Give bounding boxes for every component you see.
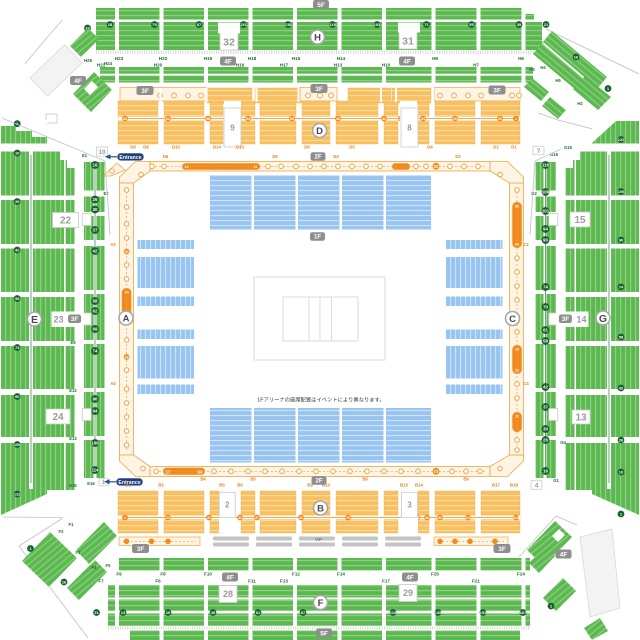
svg-text:69: 69	[93, 327, 98, 332]
svg-text:23: 23	[166, 516, 170, 520]
svg-text:D9: D9	[130, 145, 136, 150]
svg-text:4F: 4F	[560, 551, 568, 558]
svg-text:D13: D13	[236, 145, 244, 150]
svg-text:21: 21	[544, 22, 549, 27]
svg-text:14: 14	[185, 165, 189, 169]
svg-text:106: 106	[542, 190, 550, 195]
svg-text:22: 22	[60, 216, 72, 227]
svg-text:74: 74	[93, 349, 98, 354]
svg-text:B14: B14	[415, 483, 423, 488]
svg-text:F17: F17	[382, 579, 390, 584]
svg-text:46: 46	[336, 117, 340, 121]
svg-text:3F: 3F	[137, 546, 145, 553]
svg-text:50: 50	[198, 469, 203, 474]
svg-text:116: 116	[542, 163, 550, 168]
svg-text:70: 70	[346, 516, 350, 520]
svg-text:F4: F4	[92, 565, 98, 570]
svg-text:B5: B5	[219, 483, 225, 488]
svg-text:23: 23	[53, 315, 63, 325]
svg-text:VIP: VIP	[315, 537, 322, 542]
svg-text:29: 29	[403, 588, 413, 598]
svg-text:H10: H10	[382, 63, 391, 68]
svg-text:D6: D6	[163, 154, 169, 159]
svg-text:54: 54	[246, 117, 250, 121]
svg-text:5F: 5F	[320, 630, 328, 637]
svg-text:30: 30	[93, 207, 98, 212]
svg-text:39: 39	[517, 22, 522, 27]
svg-text:13: 13	[121, 610, 126, 615]
svg-text:D10: D10	[172, 145, 180, 150]
svg-text:F: F	[318, 598, 324, 609]
svg-text:17: 17	[166, 469, 171, 474]
svg-text:151: 151	[240, 22, 247, 27]
svg-text:D8: D8	[143, 145, 149, 150]
svg-text:E9: E9	[70, 340, 76, 345]
svg-text:G1: G1	[553, 478, 559, 483]
svg-text:H17: H17	[280, 63, 289, 68]
svg-text:H22: H22	[159, 56, 168, 61]
svg-text:G4: G4	[560, 440, 566, 445]
svg-text:18: 18	[108, 22, 113, 27]
svg-text:2F: 2F	[315, 479, 322, 485]
svg-text:74: 74	[15, 345, 20, 350]
svg-text:H5: H5	[555, 78, 561, 83]
svg-text:26: 26	[543, 438, 548, 443]
svg-text:E13: E13	[69, 436, 77, 441]
svg-text:H7: H7	[473, 63, 479, 68]
svg-text:42: 42	[93, 249, 98, 254]
svg-text:4F: 4F	[403, 58, 411, 65]
svg-text:30: 30	[543, 427, 548, 432]
svg-text:119: 119	[390, 610, 397, 615]
svg-text:G16: G16	[550, 152, 559, 157]
svg-text:61: 61	[256, 610, 261, 615]
svg-text:B17: B17	[492, 483, 500, 488]
svg-text:94: 94	[543, 227, 548, 232]
svg-text:A2: A2	[110, 242, 116, 247]
svg-text:F3: F3	[76, 550, 82, 555]
svg-text:58: 58	[15, 296, 20, 301]
svg-text:D1: D1	[511, 145, 517, 150]
svg-text:47: 47	[255, 516, 259, 520]
svg-text:167: 167	[520, 610, 527, 615]
svg-text:101: 101	[542, 209, 550, 214]
svg-text:62: 62	[93, 309, 98, 314]
svg-text:37: 37	[543, 405, 548, 410]
svg-text:B8: B8	[362, 477, 368, 482]
svg-text:114: 114	[91, 468, 99, 473]
svg-text:D2: D2	[455, 154, 461, 159]
svg-text:B2: B2	[158, 483, 164, 488]
svg-text:58: 58	[93, 299, 98, 304]
svg-text:F12: F12	[292, 572, 300, 577]
svg-text:34: 34	[421, 117, 425, 121]
svg-text:H13: H13	[334, 63, 343, 68]
svg-text:8: 8	[407, 123, 412, 132]
svg-text:H25: H25	[84, 58, 93, 63]
svg-text:15: 15	[574, 215, 586, 226]
svg-text:89: 89	[425, 516, 429, 520]
svg-text:28: 28	[223, 589, 233, 599]
svg-text:D5: D5	[272, 154, 278, 159]
svg-text:87: 87	[301, 610, 306, 615]
svg-text:103: 103	[374, 22, 381, 27]
svg-text:F13: F13	[280, 579, 288, 584]
svg-text:42: 42	[238, 516, 242, 520]
svg-text:1F: 1F	[314, 235, 321, 241]
svg-text:3F: 3F	[493, 87, 501, 94]
svg-text:H15: H15	[292, 56, 301, 61]
svg-text:106: 106	[618, 189, 625, 194]
svg-text:122: 122	[14, 491, 21, 496]
svg-text:D5: D5	[349, 145, 355, 150]
svg-text:14: 14	[576, 315, 586, 325]
svg-text:G15: G15	[564, 145, 573, 150]
svg-text:62: 62	[166, 117, 170, 121]
svg-text:29: 29	[166, 610, 171, 615]
svg-text:30: 30	[453, 117, 457, 121]
svg-text:A4: A4	[110, 381, 116, 386]
svg-text:9: 9	[230, 123, 235, 132]
svg-text:H19: H19	[204, 56, 213, 61]
svg-text:4F: 4F	[406, 574, 414, 581]
svg-text:135: 135	[435, 610, 442, 615]
svg-text:135: 135	[285, 22, 292, 27]
svg-text:E15: E15	[69, 483, 77, 488]
svg-text:24: 24	[52, 412, 64, 423]
svg-text:3F: 3F	[562, 316, 570, 323]
svg-text:C: C	[509, 314, 516, 325]
svg-text:122: 122	[618, 137, 625, 142]
svg-text:4: 4	[535, 482, 539, 489]
svg-text:D6: D6	[304, 145, 310, 150]
svg-text:55: 55	[469, 22, 474, 27]
svg-text:58: 58	[543, 339, 548, 344]
svg-text:94: 94	[93, 409, 98, 414]
svg-text:2: 2	[225, 501, 230, 510]
svg-text:119: 119	[513, 516, 519, 520]
svg-text:37: 37	[93, 228, 98, 233]
svg-text:45: 45	[211, 610, 216, 615]
svg-text:1Fアリーナの座席配置はイベントにより異なります。: 1Fアリーナの座席配置はイベントにより異なります。	[257, 396, 384, 404]
svg-text:13: 13	[575, 413, 587, 424]
svg-text:H3: H3	[529, 67, 535, 72]
svg-text:90: 90	[619, 237, 624, 242]
svg-text:H: H	[314, 32, 321, 43]
svg-text:42: 42	[382, 117, 386, 121]
svg-text:4F: 4F	[224, 58, 232, 65]
svg-text:F6: F6	[155, 579, 161, 584]
svg-text:58: 58	[619, 334, 624, 339]
svg-text:90: 90	[15, 394, 20, 399]
svg-text:H16: H16	[236, 63, 245, 68]
svg-text:H24: H24	[104, 61, 113, 66]
svg-text:F2: F2	[59, 529, 65, 534]
svg-text:74: 74	[543, 285, 548, 290]
svg-text:151: 151	[480, 610, 487, 615]
svg-text:42: 42	[543, 385, 548, 390]
svg-text:G: G	[599, 313, 607, 325]
svg-text:21: 21	[94, 610, 99, 615]
svg-text:B6: B6	[237, 483, 243, 488]
svg-text:F1: F1	[69, 522, 75, 527]
svg-text:F9: F9	[116, 572, 122, 577]
svg-text:C2: C2	[523, 242, 529, 247]
svg-text:74: 74	[619, 284, 624, 289]
svg-text:92: 92	[438, 516, 442, 520]
svg-text:42: 42	[15, 247, 20, 252]
svg-text:H18: H18	[248, 56, 257, 61]
svg-text:F24: F24	[517, 572, 525, 577]
svg-text:3F: 3F	[498, 546, 506, 553]
svg-text:10: 10	[15, 150, 20, 155]
svg-text:62: 62	[299, 516, 303, 520]
svg-text:H6: H6	[518, 56, 524, 61]
svg-text:B5: B5	[250, 477, 256, 482]
svg-text:16: 16	[574, 54, 579, 59]
svg-text:B: B	[317, 503, 324, 514]
svg-text:16: 16	[93, 163, 98, 168]
svg-text:H23: H23	[115, 56, 124, 61]
svg-text:H14: H14	[337, 56, 346, 61]
svg-text:71: 71	[424, 22, 429, 27]
svg-text:7: 7	[537, 148, 541, 155]
svg-text:50: 50	[434, 164, 439, 169]
svg-text:F14: F14	[337, 572, 345, 577]
svg-text:11: 11	[254, 165, 258, 169]
svg-text:D4: D4	[427, 145, 433, 150]
svg-text:16: 16	[543, 469, 548, 474]
svg-text:D4: D4	[333, 154, 339, 159]
svg-text:90: 90	[543, 238, 548, 243]
svg-text:3: 3	[407, 501, 412, 510]
svg-text:F11: F11	[248, 579, 256, 584]
svg-text:H2: H2	[577, 101, 583, 106]
svg-text:106: 106	[91, 441, 99, 446]
svg-text:3F: 3F	[141, 88, 149, 95]
svg-text:26: 26	[15, 199, 20, 204]
svg-text:10: 10	[619, 469, 624, 474]
svg-text:31: 31	[402, 35, 414, 47]
svg-text:67: 67	[197, 22, 202, 27]
svg-text:F5: F5	[106, 563, 112, 568]
svg-text:58: 58	[206, 117, 210, 121]
svg-text:D14: D14	[213, 145, 221, 150]
svg-text:F10: F10	[204, 572, 212, 577]
svg-text:E: E	[31, 314, 38, 326]
svg-text:26: 26	[93, 197, 98, 202]
svg-text:B13: B13	[400, 483, 408, 488]
svg-text:50: 50	[290, 117, 294, 121]
svg-text:B4: B4	[200, 477, 206, 482]
svg-text:F8: F8	[160, 572, 166, 577]
svg-text:1: 1	[124, 516, 126, 520]
svg-text:16: 16	[62, 579, 67, 584]
svg-text:4F: 4F	[226, 574, 234, 581]
svg-text:F20: F20	[431, 572, 439, 577]
svg-text:H4: H4	[540, 65, 546, 70]
svg-text:F21: F21	[472, 579, 480, 584]
svg-text:10: 10	[98, 149, 106, 156]
svg-text:D2: D2	[493, 145, 499, 150]
svg-text:5F: 5F	[317, 2, 325, 9]
svg-text:32: 32	[223, 36, 235, 48]
svg-text:66: 66	[123, 117, 127, 121]
svg-text:31: 31	[207, 516, 211, 520]
svg-text:E12: E12	[69, 388, 77, 393]
svg-text:3F: 3F	[71, 316, 79, 323]
svg-text:C4: C4	[523, 381, 529, 386]
svg-text:B9: B9	[463, 477, 469, 482]
svg-text:A: A	[123, 313, 130, 324]
svg-text:119: 119	[329, 22, 336, 27]
svg-text:111: 111	[465, 516, 471, 520]
svg-text:42: 42	[619, 385, 624, 390]
svg-text:4F: 4F	[74, 78, 82, 85]
svg-text:Entrance: Entrance	[119, 155, 141, 161]
svg-text:106: 106	[14, 442, 21, 447]
svg-text:G2: G2	[531, 191, 537, 196]
svg-text:26: 26	[619, 437, 624, 442]
svg-text:70: 70	[543, 305, 548, 310]
svg-text:90: 90	[93, 397, 98, 402]
svg-text:H20: H20	[154, 63, 163, 68]
svg-text:3F: 3F	[315, 86, 323, 93]
svg-text:B18: B18	[510, 483, 518, 488]
svg-text:79: 79	[152, 22, 157, 27]
svg-text:E2: E2	[103, 191, 109, 196]
svg-text:1: 1	[515, 117, 517, 121]
svg-text:26: 26	[498, 117, 502, 121]
svg-text:E16: E16	[87, 481, 95, 486]
svg-text:B1: B1	[125, 483, 131, 488]
svg-text:D: D	[316, 126, 323, 137]
svg-text:61: 61	[543, 328, 548, 333]
svg-text:H8: H8	[432, 56, 438, 61]
svg-text:2F: 2F	[314, 155, 321, 161]
